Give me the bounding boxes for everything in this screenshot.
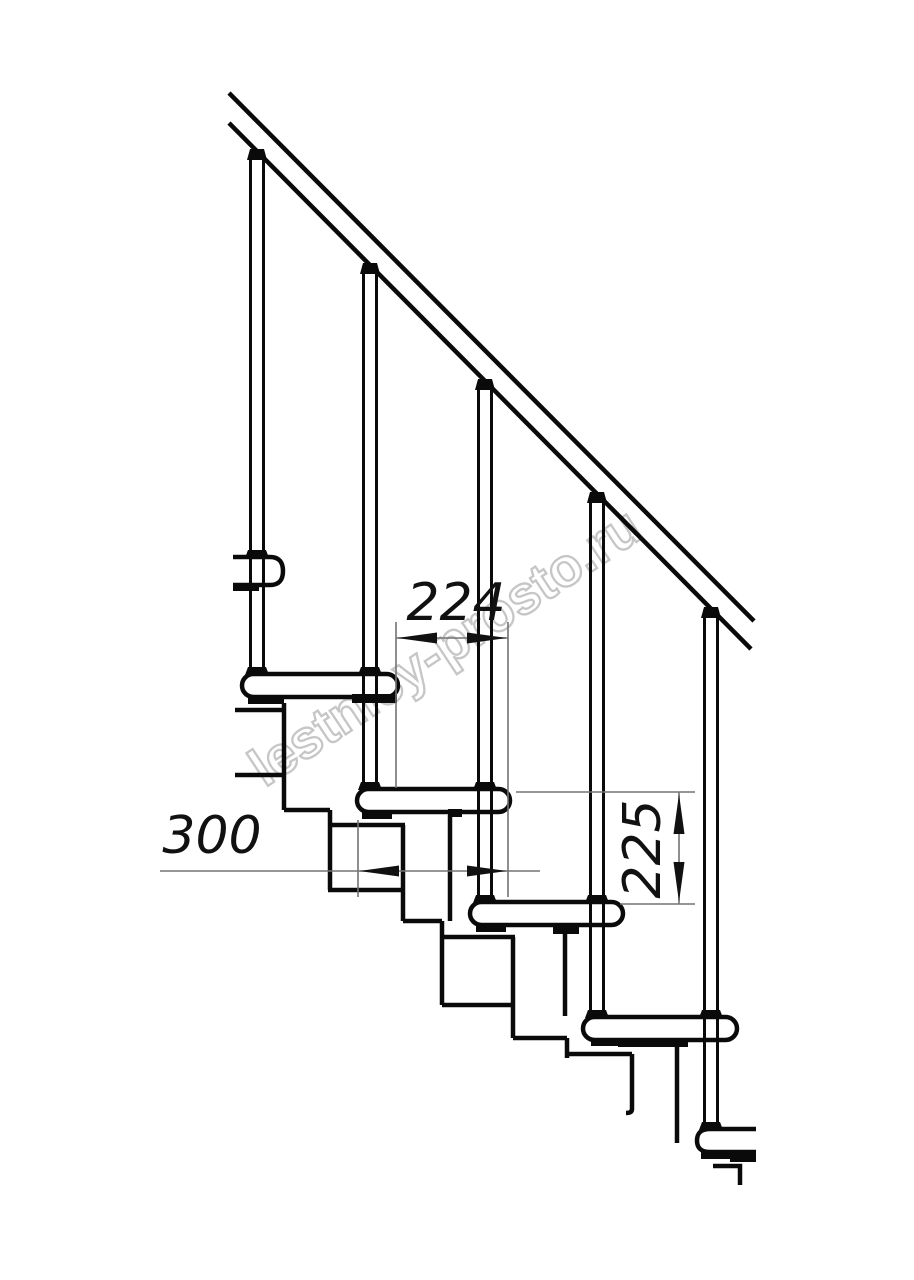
dim-label-run: 224: [406, 573, 505, 633]
tread-3: [470, 902, 623, 925]
rail-connector-icon: [360, 263, 380, 274]
module-3: [567, 1038, 632, 1113]
staircase-drawing-page: lestnicy-prosto.ru: [0, 0, 914, 1280]
dimension-depth-300: 300: [160, 806, 540, 897]
module-1-hanger: [403, 815, 450, 921]
tread-4: [583, 1017, 737, 1040]
baluster-5: [699, 607, 723, 1130]
tread-1: [242, 674, 398, 697]
module-2: [442, 921, 515, 1038]
module-4-cut: [713, 1166, 740, 1185]
dim-label-rise: 225: [613, 799, 673, 898]
dim-arrow-right-icon: [467, 866, 507, 877]
tread-top-cut: [233, 557, 283, 585]
staircase-drawing: lestnicy-prosto.ru: [0, 0, 914, 1280]
rail-connector-icon: [587, 492, 607, 503]
module-chain: [235, 703, 740, 1185]
module-2-hanger: [513, 927, 567, 1038]
rail-connector-icon: [475, 379, 495, 390]
dim-arrow-up-icon: [674, 794, 685, 834]
dim-arrow-down-icon: [674, 862, 685, 902]
dim-arrow-left-icon: [359, 866, 399, 877]
tread-5-cut: [697, 1129, 756, 1152]
rail-connector-icon: [701, 607, 721, 618]
rail-connector-icon: [247, 149, 267, 160]
dim-label-depth: 300: [162, 806, 261, 866]
tread-2: [357, 789, 510, 812]
module-1: [328, 810, 405, 921]
baluster-1: [245, 149, 269, 675]
dimension-rise-225: 225: [516, 792, 695, 904]
